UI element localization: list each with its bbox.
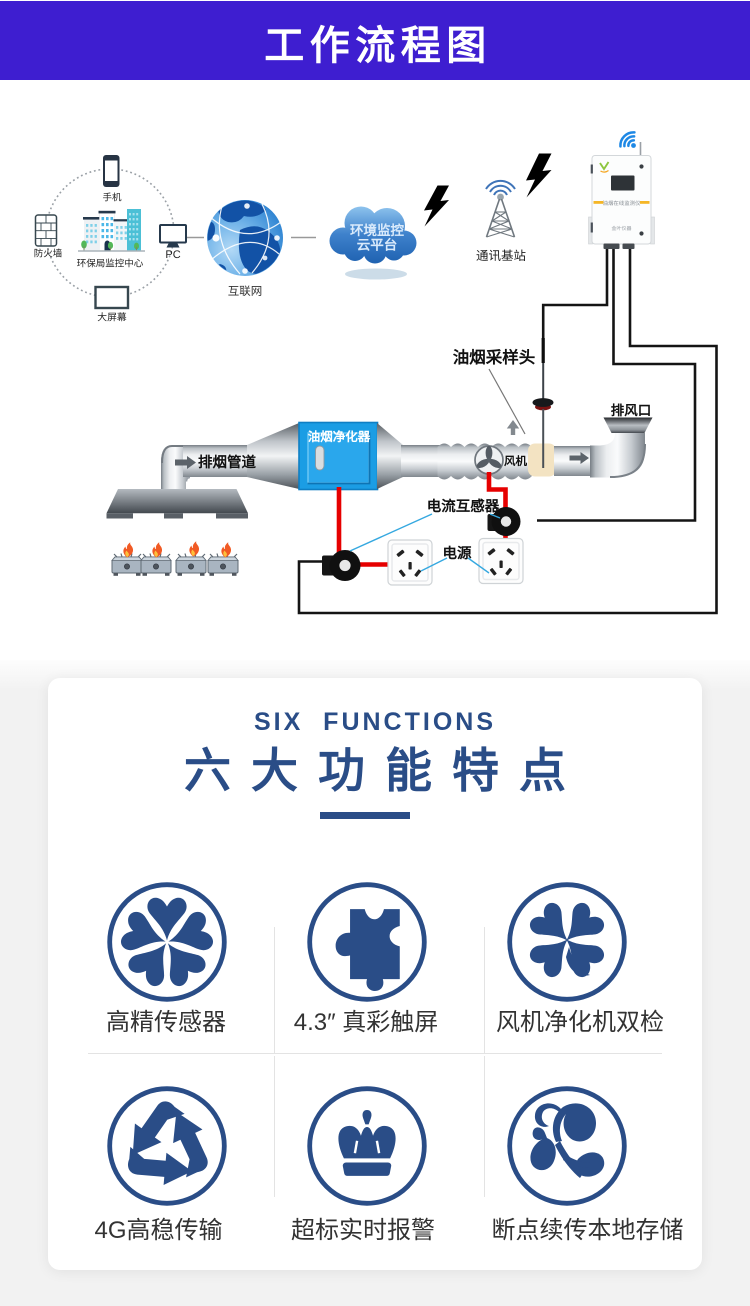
svg-text:排风口: 排风口	[611, 403, 652, 418]
svg-text:通讯基站: 通讯基站	[476, 249, 526, 263]
svg-text:手机: 手机	[102, 193, 122, 204]
svg-text:金叶仪器: 金叶仪器	[611, 225, 631, 232]
svg-text:油烟采样头: 油烟采样头	[453, 348, 536, 367]
svg-text:大屏幕: 大屏幕	[97, 312, 127, 324]
svg-text:油烟净化器: 油烟净化器	[308, 430, 371, 444]
svg-text:防火墙: 防火墙	[34, 249, 63, 260]
svg-text:风机: 风机	[504, 455, 527, 468]
svg-text:排烟管道: 排烟管道	[198, 454, 256, 471]
svg-text:环保局监控中心: 环保局监控中心	[77, 259, 144, 270]
svg-text:油烟在线监测仪: 油烟在线监测仪	[603, 200, 641, 207]
svg-text:电源: 电源	[443, 545, 472, 562]
svg-text:PC: PC	[165, 249, 180, 261]
svg-text:电流互感器: 电流互感器	[427, 498, 500, 515]
svg-text:环境监控: 环境监控	[350, 223, 404, 238]
svg-text:互联网: 互联网	[228, 285, 263, 298]
svg-text:云平台: 云平台	[357, 238, 398, 253]
